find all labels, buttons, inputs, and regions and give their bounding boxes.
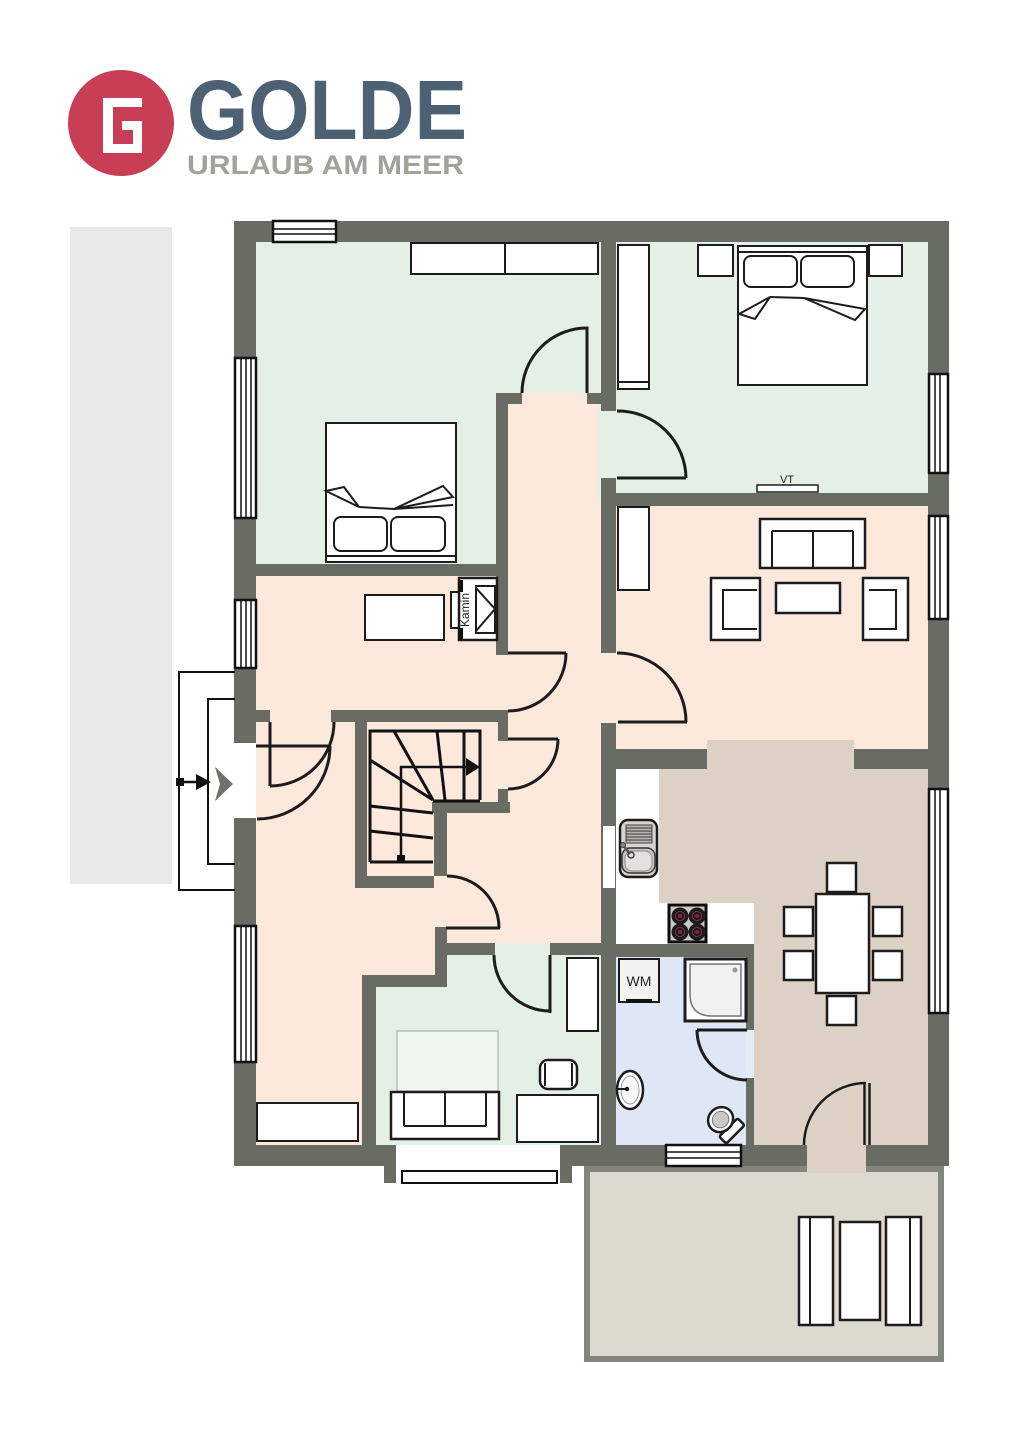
svg-text:URLAUB AM MEER: URLAUB AM MEER (187, 150, 464, 180)
svg-text:GOLDE: GOLDE (187, 63, 467, 157)
svg-text:Kamin: Kamin (458, 593, 472, 627)
svg-text:WM: WM (627, 973, 652, 989)
svg-text:VT: VT (780, 474, 794, 486)
